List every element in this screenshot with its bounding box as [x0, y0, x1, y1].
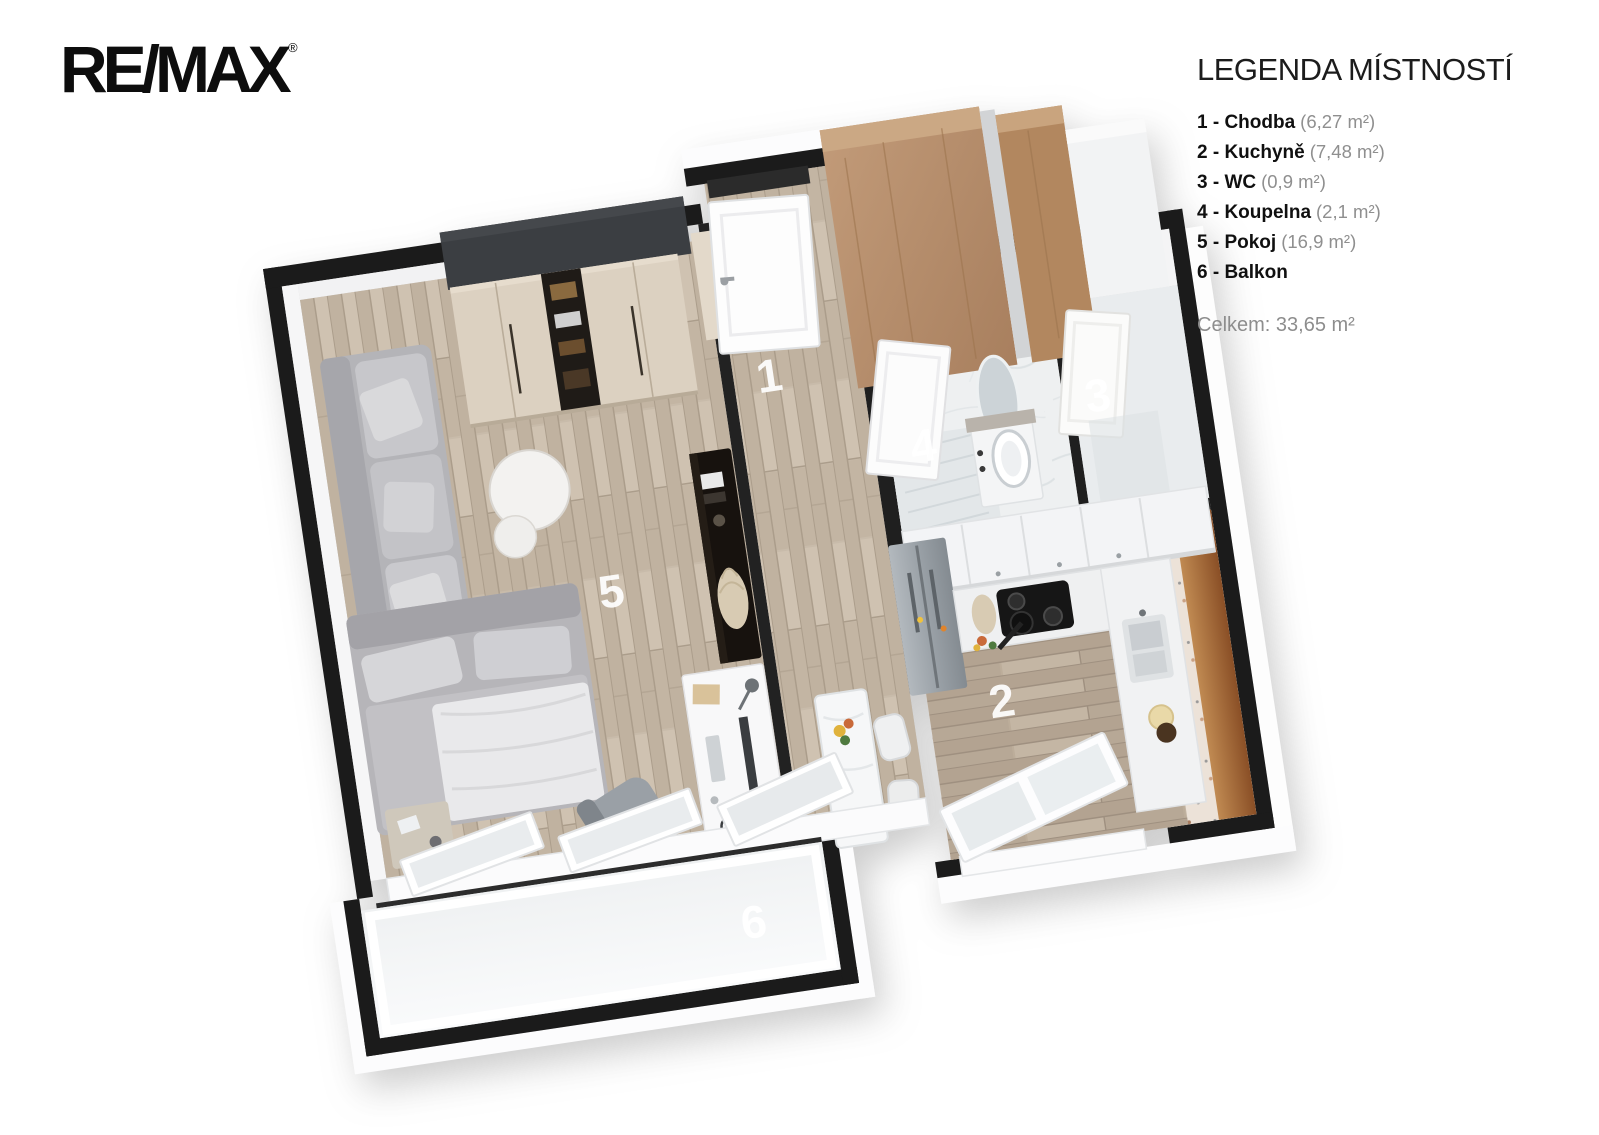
legend-title: LEGENDA MÍSTNOSTÍ: [1197, 52, 1577, 88]
legend-item-koupelna: 4 - Koupelna(2,1 m²): [1197, 197, 1577, 227]
legend-total: Celkem: 33,65 m²: [1197, 314, 1577, 337]
legend-item-area: (7,48 m²): [1310, 141, 1385, 162]
legend-item-chodba: 1 - Chodba(6,27 m²): [1197, 107, 1577, 137]
legend-item-area: (6,27 m²): [1300, 111, 1375, 132]
remax-logo-text: RE/MAX: [60, 34, 292, 106]
legend-item-label: 5 - Pokoj: [1197, 232, 1276, 253]
legend-item-area: (0,9 m²): [1261, 171, 1326, 192]
legend-item-area: (2,1 m²): [1316, 201, 1381, 222]
bed: [345, 582, 609, 836]
remax-logo-canvas: RE/MAX ®: [60, 34, 320, 110]
remax-logo: RE/MAX ®: [60, 34, 320, 115]
legend-item-kuchyne: 2 - Kuchyně(7,48 m²): [1197, 137, 1577, 167]
legend-item-balkon: 6 - Balkon: [1197, 257, 1577, 287]
legend-item-wc: 3 - WC(0,9 m²): [1197, 167, 1577, 197]
legend-item-label: 1 - Chodba: [1197, 112, 1295, 133]
legend-item-label: 4 - Koupelna: [1197, 202, 1311, 223]
legend-item-label: 6 - Balkon: [1197, 262, 1288, 283]
legend-item-label: 2 - Kuchyně: [1197, 142, 1305, 163]
legend-item-area: (16,9 m²): [1281, 231, 1356, 252]
registered-mark: ®: [288, 40, 298, 55]
legend-item-pokoj: 5 - Pokoj(16,9 m²): [1197, 227, 1577, 257]
legend-panel: LEGENDA MÍSTNOSTÍ 1 - Chodba(6,27 m²) 2 …: [1197, 52, 1577, 337]
legend-item-label: 3 - WC: [1197, 172, 1256, 193]
